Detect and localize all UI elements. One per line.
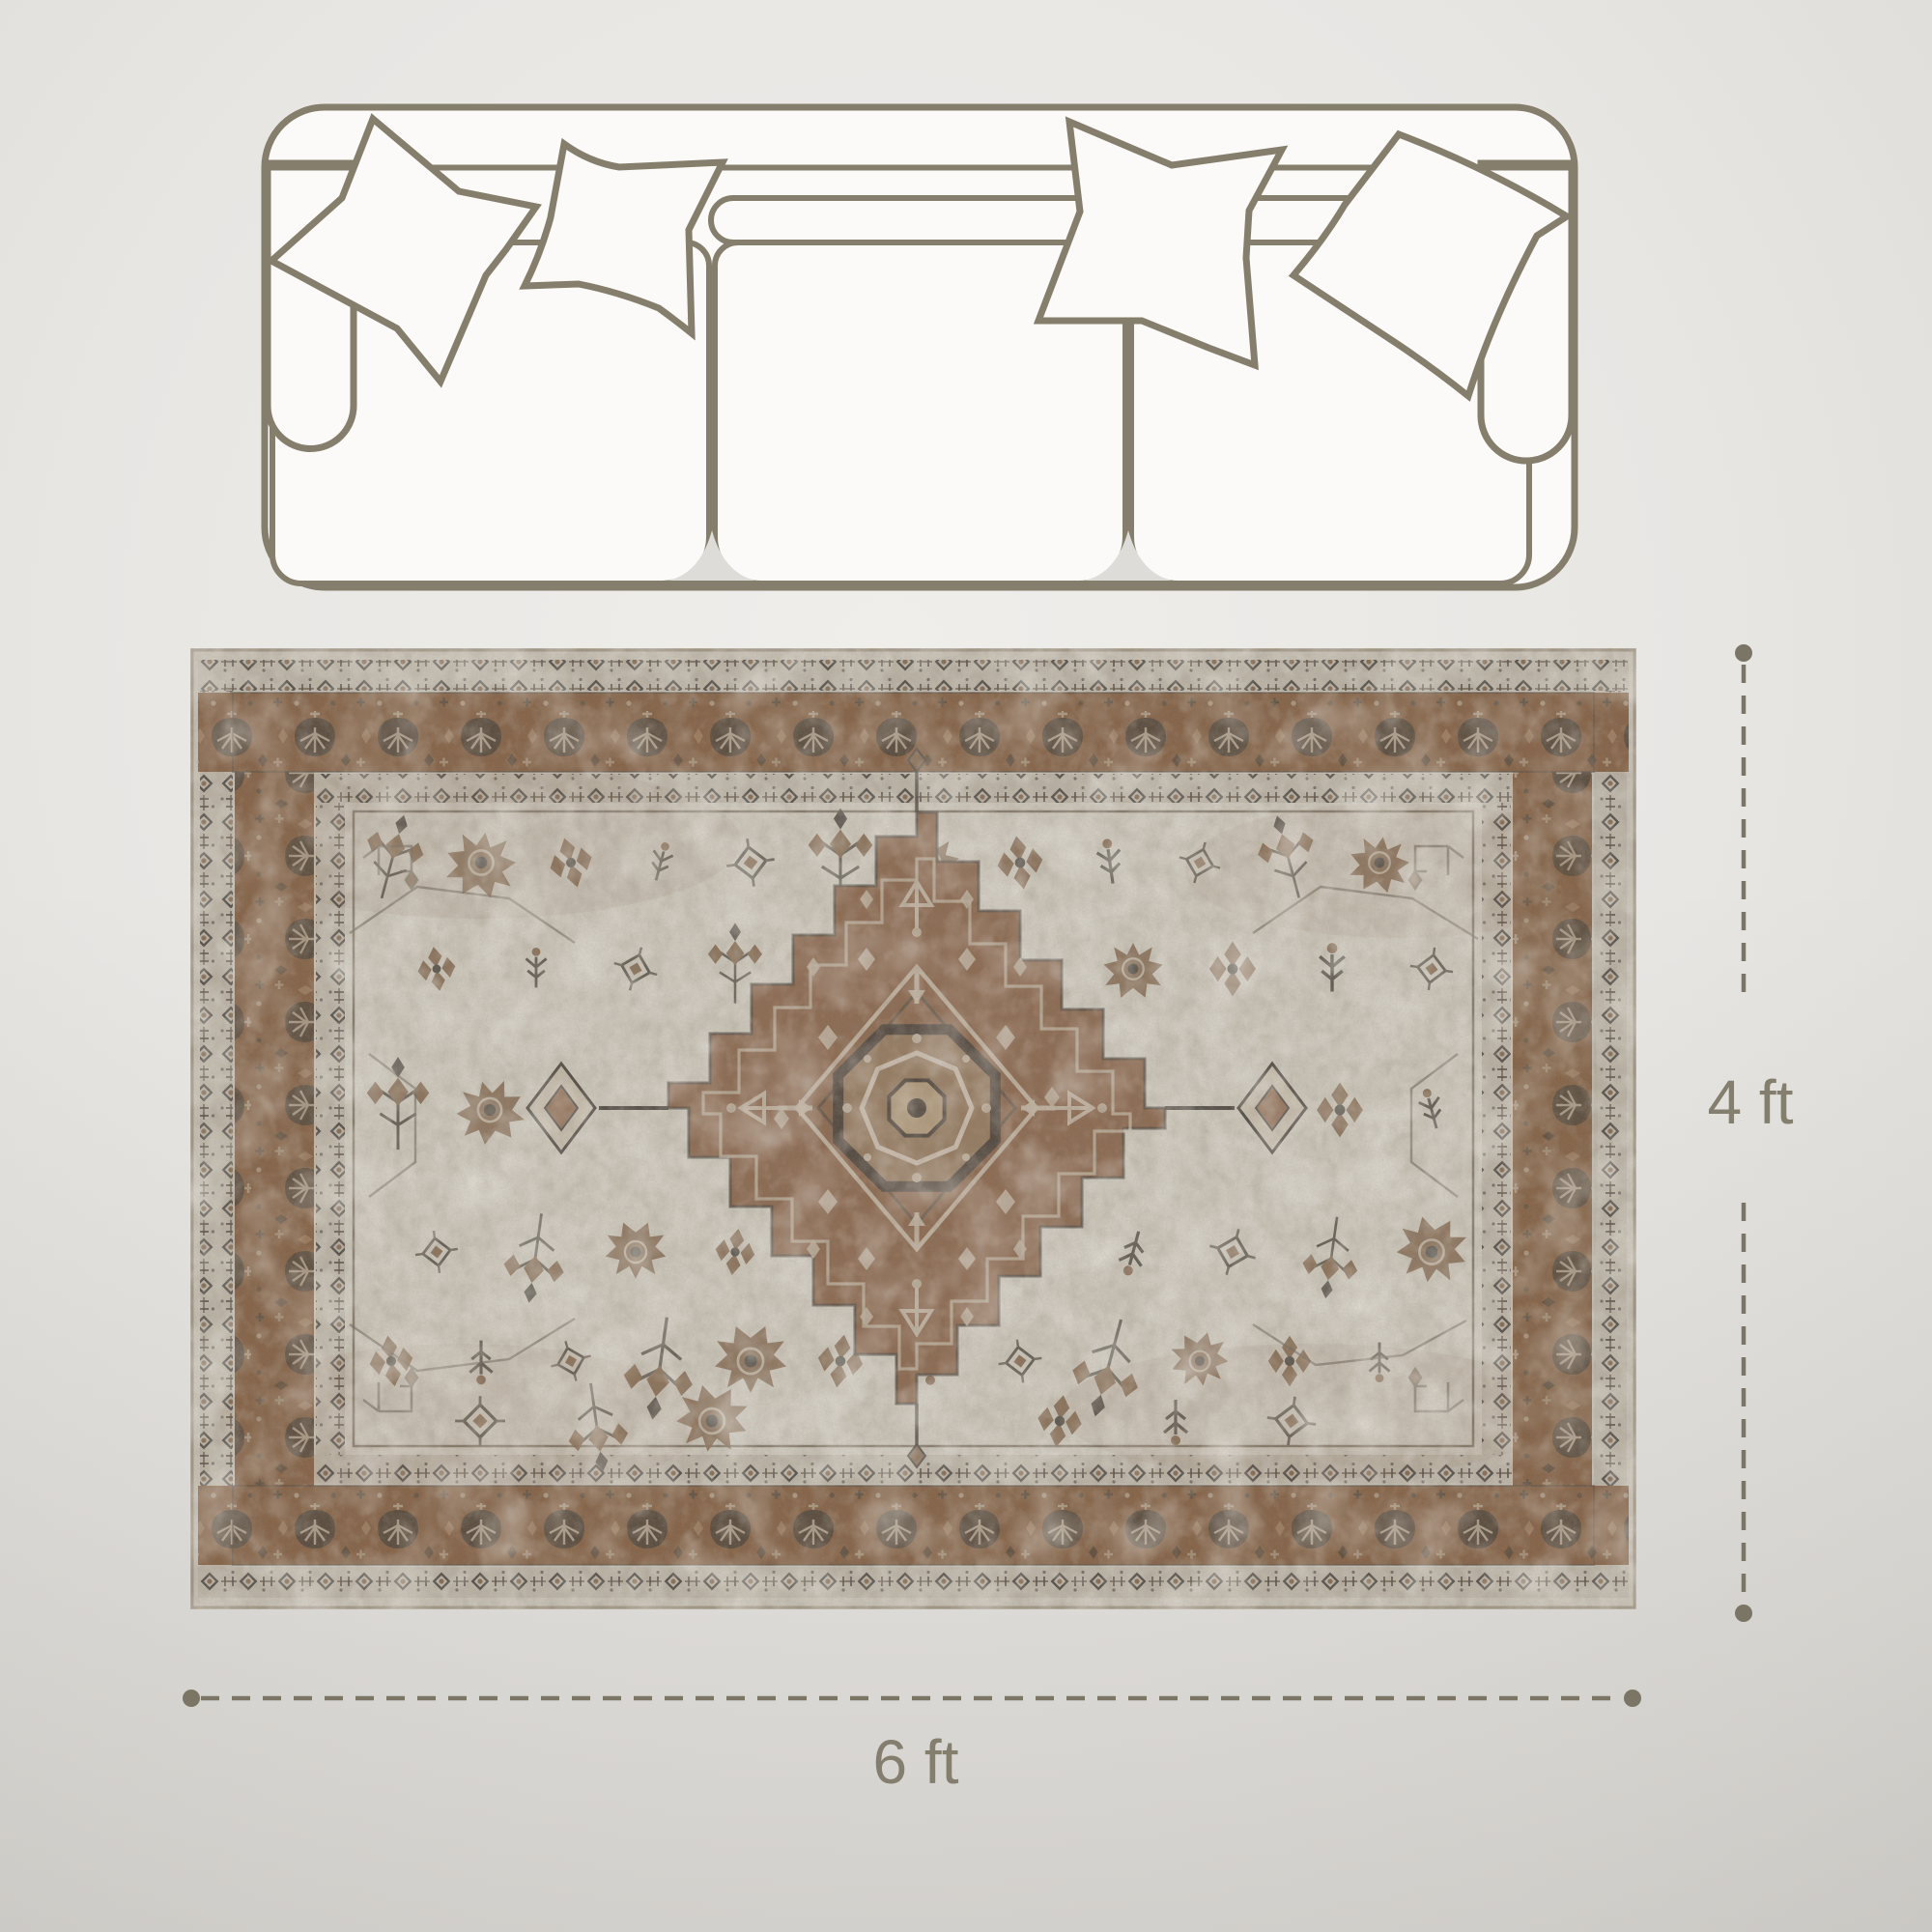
svg-text:4 ft: 4 ft	[1708, 1067, 1794, 1137]
svg-text:6 ft: 6 ft	[873, 1727, 959, 1797]
